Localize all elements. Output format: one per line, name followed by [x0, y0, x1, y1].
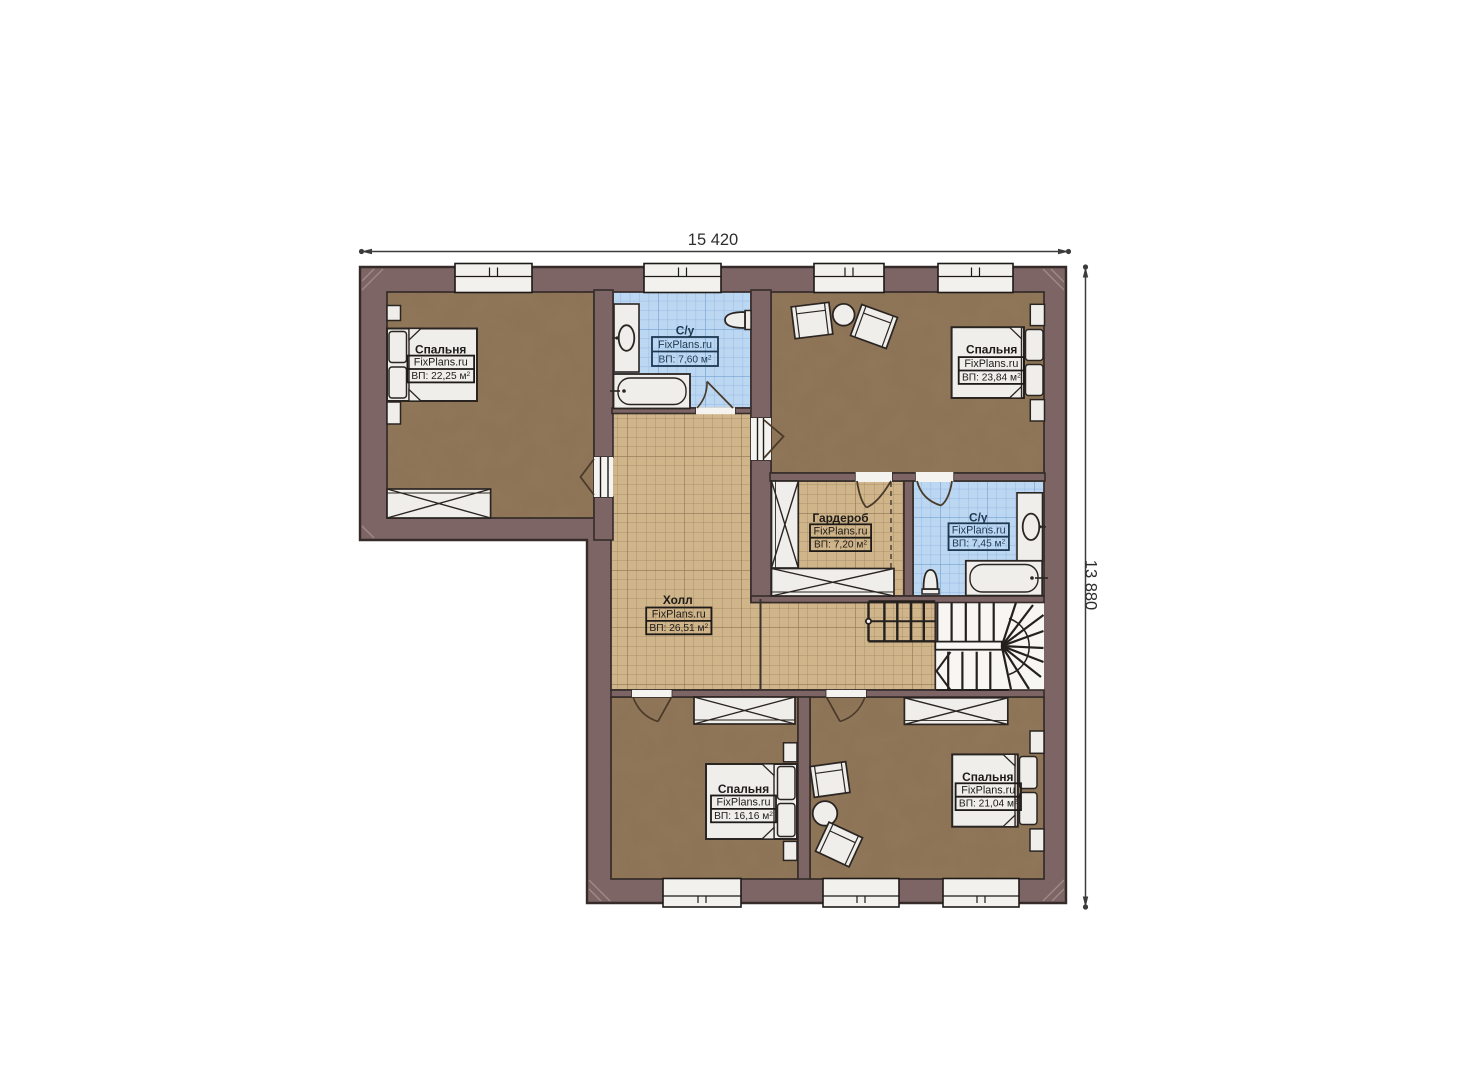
svg-text:FixPlans.ru: FixPlans.ru	[716, 797, 770, 809]
svg-text:ВП: 16,16 м2: ВП: 16,16 м2	[714, 811, 773, 822]
svg-text:ВП: 22,25 м2: ВП: 22,25 м2	[411, 371, 470, 382]
svg-text:FixPlans.ru: FixPlans.ru	[658, 339, 712, 351]
svg-text:Спальня: Спальня	[962, 770, 1013, 784]
svg-text:FixPlans.ru: FixPlans.ru	[814, 525, 868, 537]
svg-text:15 420: 15 420	[688, 231, 738, 249]
svg-text:Спальня: Спальня	[966, 343, 1017, 357]
svg-text:FixPlans.ru: FixPlans.ru	[961, 784, 1015, 796]
svg-text:Холл: Холл	[663, 593, 693, 607]
svg-text:FixPlans.ru: FixPlans.ru	[652, 609, 706, 621]
svg-text:С/у: С/у	[676, 324, 695, 338]
svg-text:FixPlans.ru: FixPlans.ru	[964, 358, 1018, 370]
svg-text:Гардероб: Гардероб	[812, 511, 868, 525]
svg-text:ВП: 26,51 м2: ВП: 26,51 м2	[649, 623, 708, 634]
svg-text:ВП: 7,20 м2: ВП: 7,20 м2	[814, 540, 867, 551]
svg-text:FixPlans.ru: FixPlans.ru	[952, 524, 1006, 536]
svg-text:Спальня: Спальня	[718, 782, 769, 796]
svg-text:ВП: 21,04 м2: ВП: 21,04 м2	[959, 799, 1018, 810]
svg-text:С/у: С/у	[969, 510, 988, 524]
svg-text:ВП: 7,45 м2: ВП: 7,45 м2	[952, 539, 1005, 550]
svg-text:FixPlans.ru: FixPlans.ru	[414, 357, 468, 369]
svg-text:ВП: 23,84 м2: ВП: 23,84 м2	[962, 373, 1021, 384]
svg-text:ВП: 7,60 м2: ВП: 7,60 м2	[658, 355, 711, 366]
svg-text:Спальня: Спальня	[415, 343, 466, 357]
svg-text:13 880: 13 880	[1082, 560, 1100, 610]
